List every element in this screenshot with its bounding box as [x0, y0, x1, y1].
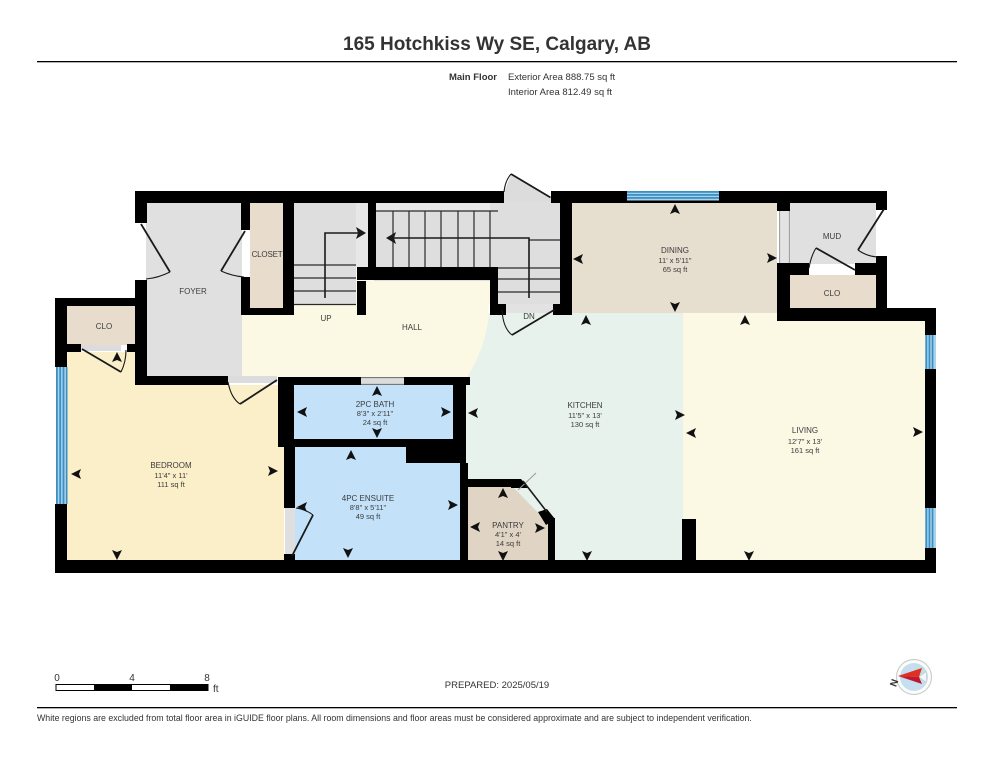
svg-text:2PC BATH: 2PC BATH: [356, 400, 395, 409]
svg-text:Exterior Area 888.75 sq ft: Exterior Area 888.75 sq ft: [508, 72, 616, 83]
svg-text:CLOSET: CLOSET: [252, 250, 283, 259]
svg-text:DN: DN: [523, 312, 535, 321]
svg-text:11' x 5'11": 11' x 5'11": [658, 256, 692, 265]
svg-text:8'3" x 2'11": 8'3" x 2'11": [357, 409, 394, 418]
svg-text:161 sq ft: 161 sq ft: [791, 446, 821, 455]
svg-text:ft: ft: [213, 684, 219, 695]
svg-text:0: 0: [54, 673, 60, 684]
svg-text:KITCHEN: KITCHEN: [567, 401, 602, 410]
svg-text:MUD: MUD: [823, 232, 841, 241]
svg-text:HALL: HALL: [402, 323, 423, 332]
svg-text:White regions are excluded fro: White regions are excluded from total fl…: [37, 713, 752, 723]
svg-text:8'8" x 5'11": 8'8" x 5'11": [350, 503, 387, 512]
svg-text:14 sq ft: 14 sq ft: [496, 539, 522, 548]
svg-text:PREPARED: 2025/05/19: PREPARED: 2025/05/19: [445, 680, 549, 691]
svg-text:12'7" x 13': 12'7" x 13': [788, 437, 823, 446]
svg-text:11'5" x 13': 11'5" x 13': [568, 411, 602, 420]
svg-text:CLO: CLO: [96, 322, 112, 331]
svg-text:CLO: CLO: [824, 289, 840, 298]
svg-text:BEDROOM: BEDROOM: [150, 461, 192, 470]
svg-text:Interior Area 812.49 sq ft: Interior Area 812.49 sq ft: [508, 87, 612, 98]
svg-text:PANTRY: PANTRY: [492, 521, 524, 530]
svg-text:4'1" x 4': 4'1" x 4': [495, 530, 522, 539]
svg-text:24 sq ft: 24 sq ft: [363, 418, 389, 427]
svg-text:4PC ENSUITE: 4PC ENSUITE: [342, 494, 394, 503]
svg-text:165 Hotchkiss Wy SE, Calgary,: 165 Hotchkiss Wy SE, Calgary, AB: [343, 34, 651, 55]
svg-text:130 sq ft: 130 sq ft: [571, 420, 601, 429]
svg-text:FOYER: FOYER: [179, 287, 207, 296]
svg-text:111 sq ft: 111 sq ft: [157, 480, 186, 489]
svg-text:11'4" x 11': 11'4" x 11': [154, 471, 188, 480]
svg-text:Main Floor: Main Floor: [449, 72, 497, 83]
svg-text:LIVING: LIVING: [792, 426, 818, 435]
svg-text:65 sq ft: 65 sq ft: [663, 265, 689, 274]
svg-text:49 sq ft: 49 sq ft: [356, 512, 382, 521]
svg-text:4: 4: [129, 673, 135, 684]
svg-text:8: 8: [204, 673, 210, 684]
svg-text:DINING: DINING: [661, 246, 689, 255]
svg-text:UP: UP: [320, 314, 331, 323]
